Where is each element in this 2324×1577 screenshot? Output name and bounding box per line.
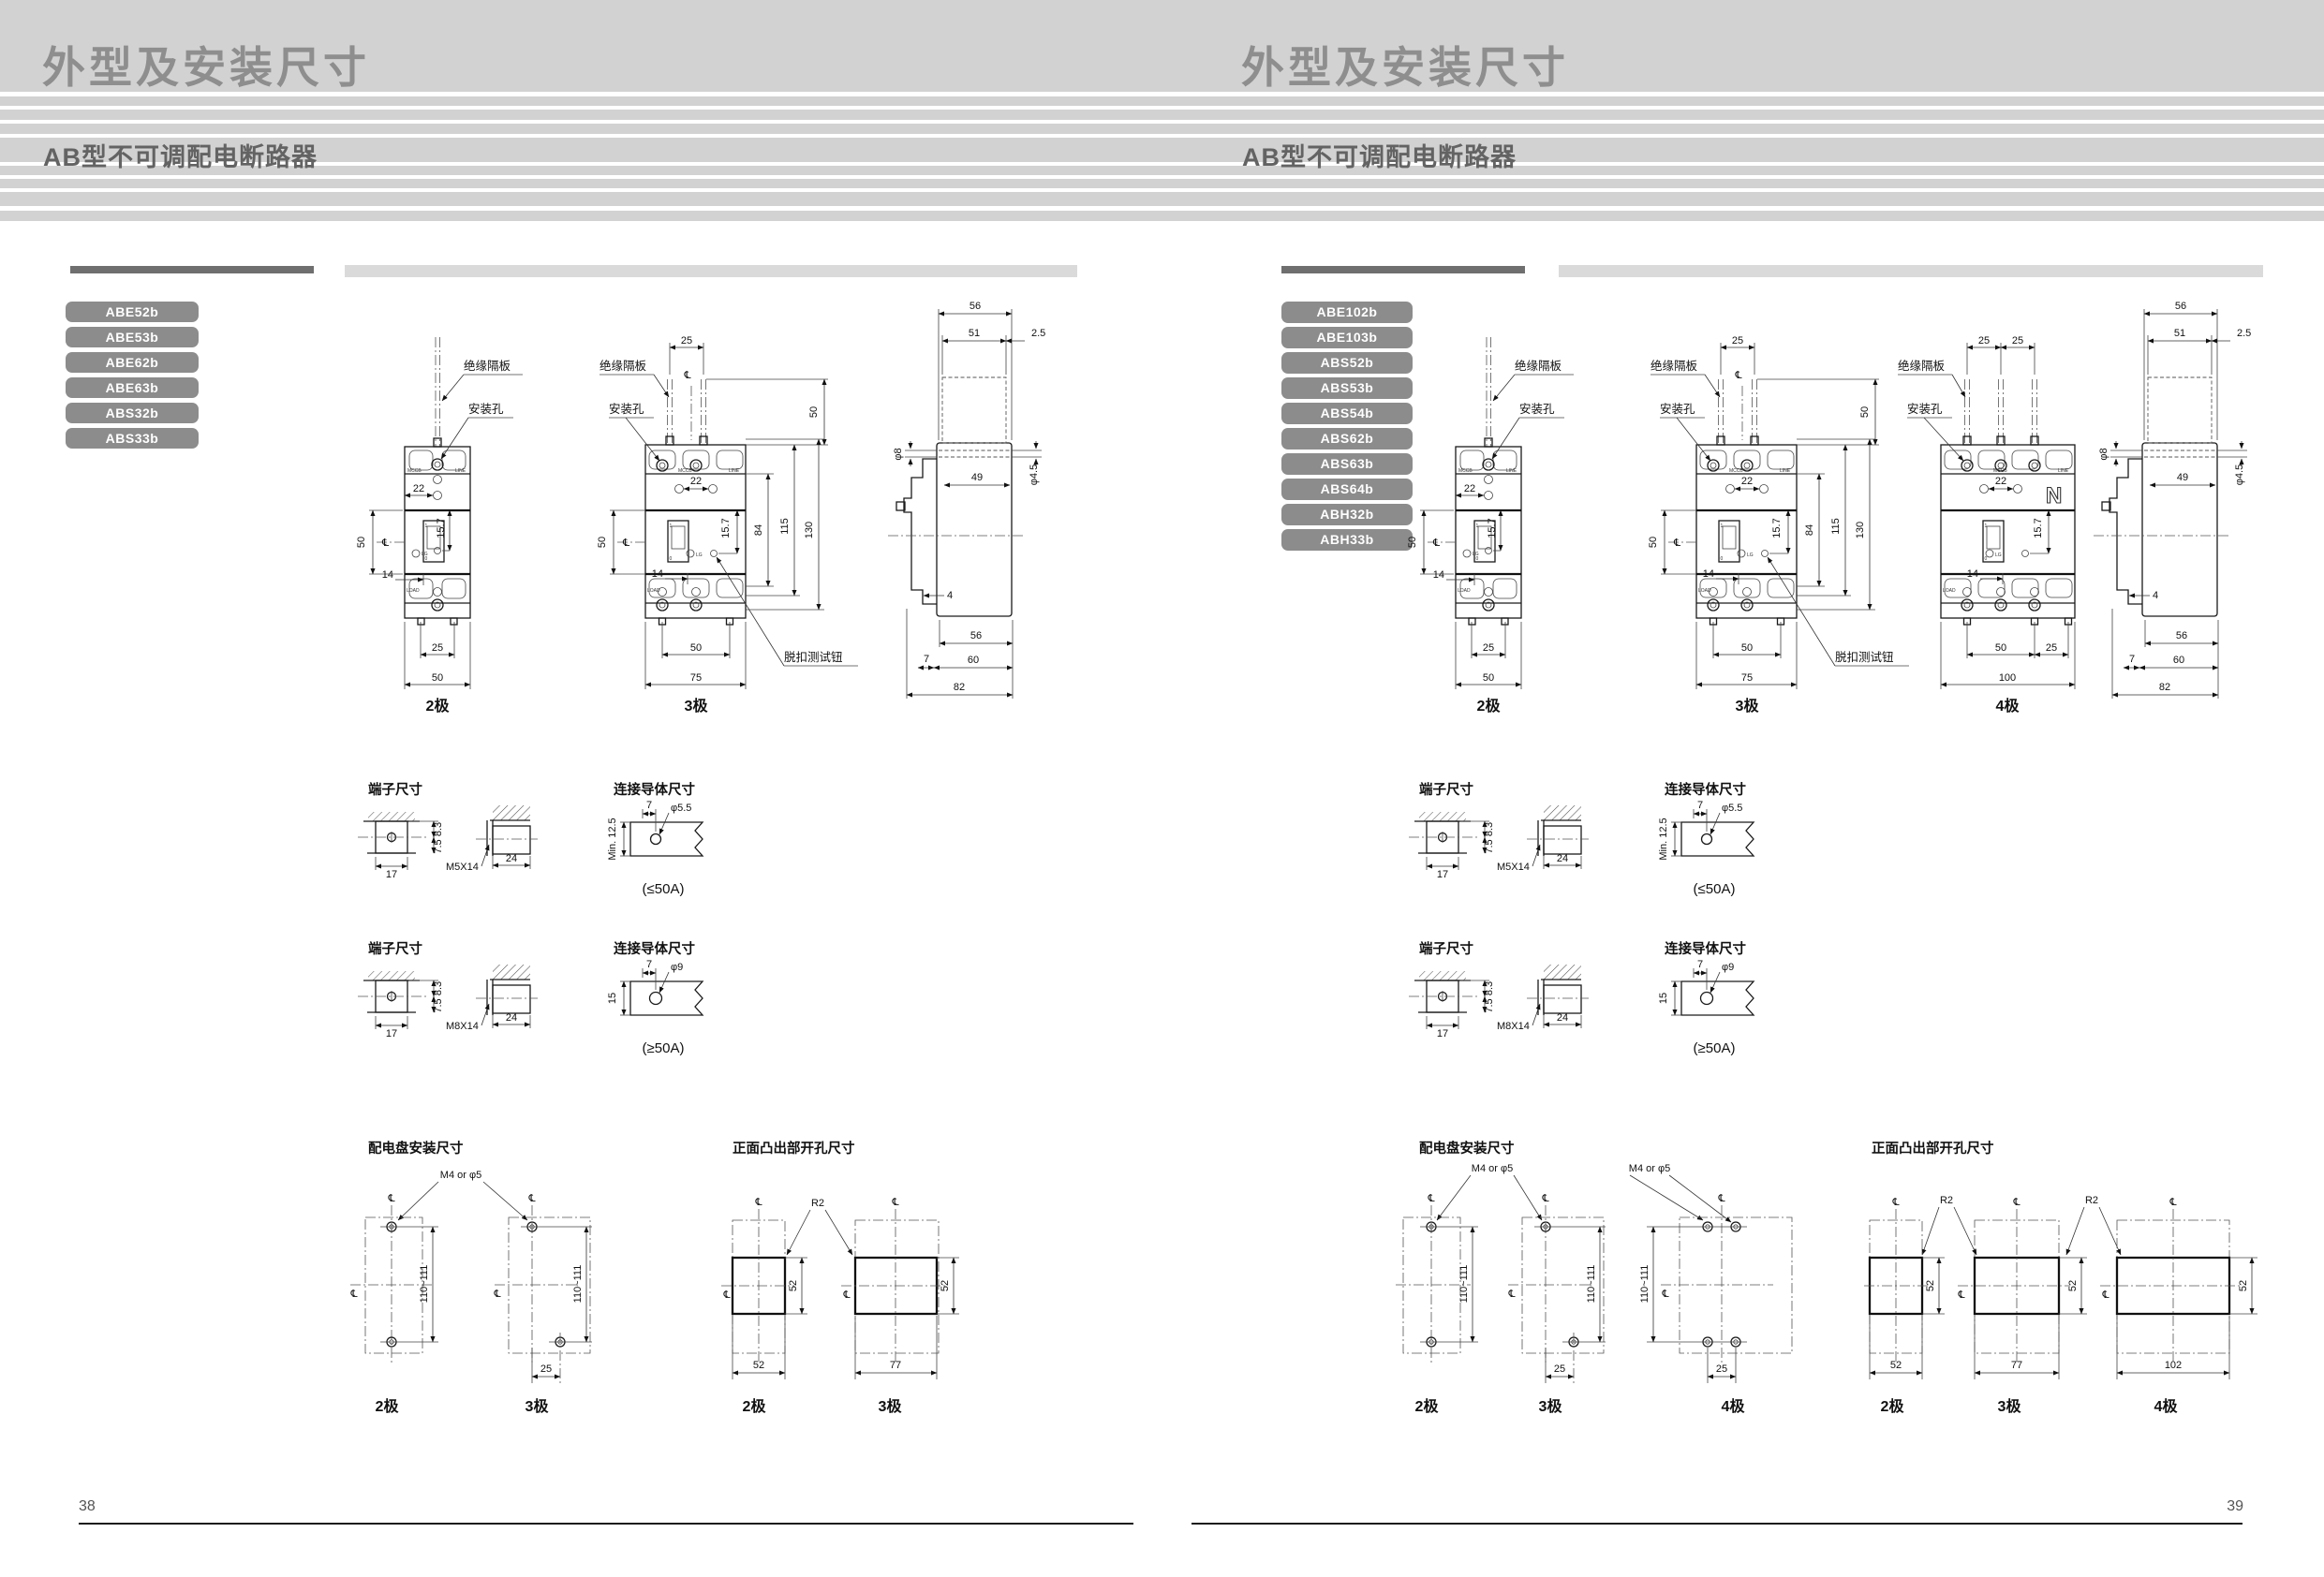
dim-label: 14 [1703, 568, 1714, 580]
model-badge: ABS52b [1281, 352, 1413, 374]
dim-label: 17 [386, 1028, 397, 1039]
model-badge: ABE63b [66, 377, 199, 398]
page-number-left: 38 [79, 1498, 96, 1515]
caption: 4极 [1722, 1397, 1746, 1415]
dim-label: 22 [1995, 476, 2006, 487]
dim-label: 110~111 [1458, 1265, 1470, 1304]
dim-label: 7 [646, 959, 652, 970]
centerline-symbol: ℄ [1541, 1193, 1548, 1204]
dim-label: 52 [940, 1280, 951, 1291]
dim-label: 24 [506, 853, 517, 864]
caption: 3极 [1736, 697, 1760, 715]
dim-label: 75 [1741, 672, 1753, 684]
dim-label: 110~111 [1639, 1265, 1650, 1304]
leader-label: 脱扣测试钮 [784, 650, 843, 664]
section-title: 端子尺寸 [368, 940, 422, 957]
dim-label: 7.5 [1484, 839, 1495, 853]
dim-label: 82 [954, 682, 965, 693]
dim-label: 24 [1557, 853, 1568, 864]
face-text: MCCB [1729, 468, 1743, 474]
dim-label: 2.5 [1031, 328, 1045, 339]
dim-label: 25 [540, 1363, 552, 1375]
rating-label: (≥50A) [643, 1040, 685, 1056]
centerline-symbol: ℄ [2101, 1290, 2109, 1301]
dim-label: 110~111 [572, 1265, 584, 1304]
leader-label: 脱扣测试钮 [1835, 650, 1894, 664]
caption: 2极 [743, 1397, 767, 1415]
centerline-symbol: ℄ [1427, 1193, 1434, 1204]
dim-label: 22 [690, 476, 702, 487]
centerline-symbol: ℄ [2012, 1197, 2020, 1208]
dim-label: 17 [1437, 1028, 1448, 1039]
dim-label: 77 [890, 1360, 901, 1371]
dim-label: 52 [2238, 1280, 2249, 1291]
model-badge: ABE53b [66, 327, 199, 347]
dim-label: 52 [2067, 1280, 2079, 1291]
dim-label: 52 [1925, 1280, 1936, 1291]
footer-rule-right [1192, 1523, 2243, 1525]
dim-label: 25 [1483, 642, 1494, 654]
dim-label: 7 [924, 654, 929, 665]
rating-label: (≤50A) [643, 881, 685, 897]
front-view-3pole: LG MCCB LINE LOAD 1 0 ℄ 25 50 84 115 130… [597, 335, 858, 715]
screw-label: M4 or φ5 [440, 1170, 481, 1181]
dim-label: 14 [1967, 568, 1978, 580]
dim-label: 50 [1407, 537, 1418, 548]
handle-on: 1 [425, 523, 428, 529]
centerline-symbol: ℄ [1432, 538, 1440, 549]
dim-label: 14 [1433, 569, 1444, 581]
face-text: LOAD [407, 588, 420, 594]
section-bar-dark [70, 266, 314, 273]
model-badge: ABH32b [1281, 504, 1413, 525]
dim-label: 102 [2165, 1360, 2182, 1371]
model-list-left: ABE52b ABE53b ABE62b ABE63b ABS32b ABS33… [66, 302, 199, 453]
section-title: 配电盘安装尺寸 [368, 1140, 464, 1157]
model-badge: ABE62b [66, 352, 199, 373]
face-text: MCCB [407, 468, 422, 474]
face-text: MCCB [1458, 468, 1473, 474]
dim-label: 130 [1855, 522, 1866, 538]
dim-label: 110~111 [419, 1265, 430, 1304]
handle-on: 1 [670, 523, 673, 529]
dim-label: 110~111 [1586, 1265, 1597, 1304]
model-badge: ABS54b [1281, 403, 1413, 424]
dim-label: 52 [1890, 1360, 1902, 1371]
page-subtitle: AB型不可调配电断路器 [1242, 137, 1517, 173]
face-text: LOAD [1698, 588, 1711, 594]
dim-label: 24 [506, 1012, 517, 1024]
model-badge: ABS32b [66, 403, 199, 423]
section-title: 配电盘安装尺寸 [1419, 1140, 1515, 1157]
dim-label: 15.7 [1487, 518, 1498, 538]
model-badge: ABS64b [1281, 479, 1413, 500]
leader-label: 绝缘隔板 [464, 359, 511, 373]
centerline-symbol: ℄ [891, 1197, 898, 1208]
dim-label: 7 [1697, 959, 1703, 970]
face-text: LOAD [647, 588, 660, 594]
leader-label: 安装孔 [1519, 402, 1555, 416]
dim-label: 25 [1732, 335, 1743, 346]
dim-label: φ4.5 [2234, 464, 2245, 485]
page-title: 外型及安装尺寸 [1241, 34, 1569, 96]
dim-label: 50 [356, 537, 367, 548]
dim-label: 14 [652, 568, 663, 580]
dim-label: 15.7 [436, 518, 447, 538]
dim-label: 60 [2173, 655, 2184, 666]
dim-label: 25 [2046, 642, 2057, 654]
leader-label: 安装孔 [1907, 402, 1943, 416]
model-badge: ABS63b [1281, 453, 1413, 475]
dim-label: 84 [1804, 524, 1815, 536]
centerline-symbol: ℄ [1891, 1197, 1899, 1208]
centerline-symbol: ℄ [842, 1290, 850, 1301]
dim-label: 7.5 [433, 839, 444, 853]
dim-label: Min. 12.5 [1658, 818, 1669, 860]
dim-label: 25 [1978, 335, 1990, 346]
dim-label: 100 [1999, 672, 2016, 684]
section-bar-dark [1281, 266, 1525, 273]
centerline-symbol: ℄ [1957, 1290, 1964, 1301]
dim-label: 17 [1437, 869, 1448, 880]
leader-label: 绝缘隔板 [1898, 359, 1946, 373]
dim-label: 15 [1658, 993, 1669, 1004]
dim-label: 60 [968, 655, 979, 666]
caption: 2极 [376, 1397, 400, 1415]
face-text: MCCB [1993, 468, 2007, 474]
front-view-3pole: LG MCCB LINE LOAD 1 0 ℄ 25 50 84 115 130… [1648, 335, 1909, 715]
outline-drawing-right: LG MCCB LINE LOAD 1 0 22 50 ℄ 15.7 14 25… [1396, 281, 2324, 721]
leader-label: 绝缘隔板 [600, 359, 647, 373]
model-badge: ABS53b [1281, 377, 1413, 399]
caption: 3极 [685, 697, 709, 715]
centerline-symbol: ℄ [1661, 1289, 1668, 1300]
model-badge: ABE102b [1281, 302, 1413, 323]
dim-label: 56 [970, 630, 982, 641]
dim-label: 14 [382, 569, 393, 581]
screw-label: M4 or φ5 [1629, 1163, 1670, 1174]
dim-label: Min. 12.5 [607, 818, 618, 860]
dim-label: 82 [2159, 682, 2170, 693]
rating-label: (≥50A) [1694, 1040, 1736, 1056]
dim-label: M8X14 [1497, 1021, 1530, 1032]
dim-label: 50 [690, 642, 702, 654]
caption: 3极 [525, 1397, 550, 1415]
dim-label: 15.7 [1771, 518, 1783, 538]
panel-mounting-left: 配电盘安装尺寸 M4 or φ5 ℄ ℄ 110~111 2极 ℄ ℄ 110~… [345, 1138, 654, 1433]
dim-label: 50 [1859, 406, 1871, 418]
leader-label: 安装孔 [609, 402, 644, 416]
section-title: 连接导体尺寸 [1665, 781, 1746, 798]
brand-text: LG [1747, 553, 1754, 558]
section-bar-light [1559, 265, 2263, 277]
dim-label: 25 [2012, 335, 2023, 346]
dim-label: 115 [1830, 518, 1842, 535]
side-view: 56 51 2.5 φ8 49 φ4.5 4 56 7 60 82 [888, 301, 1045, 699]
model-list-right: ABE102b ABE103b ABS52b ABS53b ABS54b ABS… [1281, 302, 1413, 554]
dim-label: 56 [970, 301, 981, 312]
face-text: LINE [455, 468, 466, 474]
leader-label: 绝缘隔板 [1650, 359, 1698, 373]
handle-off: 0 [1721, 556, 1724, 562]
face-text: LINE [1506, 468, 1517, 474]
dim-label: 50 [1741, 642, 1753, 654]
dim-label: 25 [1554, 1363, 1565, 1375]
terminal-dims-left-1: 端子尺寸 17 8.3 7.5 M5X14 24 连接导体尺寸 7 φ5.5 M… [345, 777, 719, 913]
face-text: MCCB [678, 468, 692, 474]
section-title: 连接导体尺寸 [614, 781, 695, 798]
radius-label: R2 [2085, 1195, 2098, 1206]
dim-label: φ8 [893, 448, 904, 460]
caption: 3极 [879, 1397, 903, 1415]
brand-text: LG [696, 553, 703, 558]
caption: 2极 [1477, 697, 1502, 715]
model-badge: ABS33b [66, 428, 199, 449]
centerline-symbol: ℄ [754, 1197, 762, 1208]
dim-label: 50 [432, 672, 443, 684]
section-bar-light [345, 265, 1077, 277]
dim-label: 56 [2176, 630, 2187, 641]
centerline-symbol: ℄ [722, 1290, 730, 1301]
dim-label: 8.3 [1484, 981, 1495, 995]
model-badge: ABE52b [66, 302, 199, 322]
handle-off: 0 [670, 556, 673, 562]
centerline-symbol: ℄ [622, 538, 629, 549]
caption: 2极 [426, 697, 451, 715]
dim-label: 130 [804, 522, 815, 538]
dim-label: 51 [969, 328, 980, 339]
dim-label: 17 [386, 869, 397, 880]
outline-drawing-left: LG MCCB LINE LOAD 1 0 22 50 ℄ 15.7 14 25… [345, 281, 1094, 721]
dim-label: 84 [753, 524, 764, 536]
model-badge: ABH33b [1281, 529, 1413, 551]
dim-label: 50 [1648, 537, 1659, 548]
front-view-2pole: LG MCCB LINE LOAD 1 0 22 50 ℄ 15.7 14 25… [356, 337, 523, 715]
page-subtitle: AB型不可调配电断路器 [43, 137, 318, 173]
leader-label: 绝缘隔板 [1515, 359, 1562, 373]
dim-label: 4 [947, 590, 953, 601]
dim-label: 50 [808, 406, 820, 418]
dim-label: 8.3 [433, 822, 444, 836]
dim-label: 77 [2011, 1360, 2022, 1371]
face-text: LINE [2058, 468, 2069, 474]
centerline-symbol: ℄ [1507, 1289, 1515, 1300]
front-cutout-left: 正面凸出部开孔尺寸 R2 ℄ ℄ 52 52 2极 ℄ ℄ 52 77 3极 [721, 1138, 1002, 1433]
section-title: 连接导体尺寸 [614, 940, 695, 957]
dim-label: 7 [1697, 800, 1703, 811]
terminal-dims-right-2: 端子尺寸 17 8.3 7.5 M8X14 24 连接导体尺寸 7 φ9 15 … [1396, 936, 1770, 1072]
dim-label: φ8 [2098, 448, 2109, 460]
section-title: 正面凸出部开孔尺寸 [1872, 1140, 1994, 1157]
centerline-symbol: ℄ [1734, 370, 1741, 381]
face-text: LINE [1780, 468, 1791, 474]
caption: 2极 [1415, 1397, 1440, 1415]
page-number-right: 39 [2208, 1498, 2243, 1515]
dim-label: 51 [2174, 328, 2185, 339]
front-view-4pole: LG MCCB LINE LOAD 1 0 N 25 25 22 15.7 14… [1898, 335, 2075, 715]
dim-label: 25 [1716, 1363, 1727, 1375]
dim-label: 22 [1464, 483, 1475, 494]
face-text: LOAD [1943, 588, 1956, 594]
neutral-pole-mark: N [2046, 483, 2062, 508]
dim-label: 7.5 [433, 998, 444, 1012]
section-title: 端子尺寸 [1419, 940, 1473, 957]
centerline-symbol: ℄ [387, 1193, 394, 1204]
caption: 4极 [1996, 697, 2021, 715]
model-badge: ABS62b [1281, 428, 1413, 450]
handle-off: 0 [1985, 556, 1988, 562]
face-text: LINE [729, 468, 740, 474]
front-view-2pole: LG MCCB LINE LOAD 1 0 22 50 ℄ 15.7 14 25… [1407, 337, 1574, 715]
dim-label: 56 [2175, 301, 2186, 312]
dim-label: 49 [971, 472, 983, 483]
screw-label: M4 or φ5 [1472, 1163, 1513, 1174]
dim-label: 25 [681, 335, 692, 346]
caption: 4极 [2154, 1397, 2179, 1415]
dim-label: φ5.5 [1722, 803, 1742, 814]
dim-label: 15.7 [720, 518, 732, 538]
dim-label: φ9 [671, 962, 683, 973]
dim-label: M5X14 [446, 862, 479, 873]
handle-on: 1 [1476, 523, 1479, 529]
dim-label: 25 [432, 642, 443, 654]
centerline-symbol: ℄ [381, 538, 389, 549]
handle-on: 1 [1985, 523, 1988, 529]
dim-label: φ5.5 [671, 803, 691, 814]
dim-label: 49 [2177, 472, 2188, 483]
dim-label: 75 [690, 672, 702, 684]
section-title: 连接导体尺寸 [1665, 940, 1746, 957]
dim-label: 8.3 [433, 981, 444, 995]
dim-label: 115 [779, 518, 791, 535]
caption: 3极 [1539, 1397, 1563, 1415]
section-title: 端子尺寸 [1419, 781, 1473, 798]
leader-label: 安装孔 [1660, 402, 1695, 416]
dim-label: 50 [1483, 672, 1494, 684]
dim-label: 52 [753, 1360, 764, 1371]
handle-off: 0 [1476, 556, 1479, 562]
centerline-symbol: ℄ [683, 370, 690, 381]
side-view: 56 51 2.5 φ8 49 φ4.5 4 56 7 60 82 [2094, 301, 2251, 699]
dim-label: 15 [607, 993, 618, 1004]
radius-label: R2 [811, 1198, 824, 1209]
centerline-symbol: ℄ [349, 1289, 357, 1300]
handle-on: 1 [1721, 523, 1724, 529]
dim-label: 22 [1741, 476, 1753, 487]
front-cutout-right: 正面凸出部开孔尺寸 R2 ℄ 52 52 2极 R2 ℄ ℄ 52 77 3极 … [1864, 1138, 2304, 1433]
centerline-symbol: ℄ [527, 1193, 535, 1204]
radius-label: R2 [1940, 1195, 1953, 1206]
dim-label: 15.7 [2033, 518, 2044, 538]
page-title: 外型及安装尺寸 [42, 34, 370, 96]
face-text: LOAD [1458, 588, 1471, 594]
dim-label: 7 [2129, 654, 2135, 665]
terminal-dims-right-1: 端子尺寸 17 8.3 7.5 M5X14 24 连接导体尺寸 7 φ5.5 M… [1396, 777, 1770, 913]
dim-label: 52 [788, 1280, 799, 1291]
dim-label: 8.3 [1484, 822, 1495, 836]
dim-label: 7.5 [1484, 998, 1495, 1012]
dim-label: φ4.5 [1029, 464, 1040, 485]
dim-label: 7 [646, 800, 652, 811]
panel-mounting-right: 配电盘安装尺寸 M4 or φ5 ℄ 110~111 2极 ℄ ℄ 110~11… [1396, 1138, 1845, 1433]
centerline-symbol: ℄ [493, 1289, 500, 1300]
dim-label: M5X14 [1497, 862, 1530, 873]
centerline-symbol: ℄ [2169, 1197, 2176, 1208]
header-stripes [0, 92, 2324, 221]
dim-label: 50 [597, 537, 608, 548]
footer-rule-left [79, 1523, 1133, 1525]
dim-label: φ9 [1722, 962, 1734, 973]
section-title: 正面凸出部开孔尺寸 [733, 1140, 855, 1157]
centerline-symbol: ℄ [1673, 538, 1680, 549]
caption: 3极 [1998, 1397, 2022, 1415]
centerline-symbol: ℄ [1717, 1193, 1724, 1204]
handle-off: 0 [425, 556, 428, 562]
section-title: 端子尺寸 [368, 781, 422, 798]
caption: 2极 [1881, 1397, 1905, 1415]
dim-label: 2.5 [2237, 328, 2251, 339]
dim-label: 4 [2153, 590, 2158, 601]
dim-label: 50 [1995, 642, 2006, 654]
model-badge: ABE103b [1281, 327, 1413, 348]
rating-label: (≤50A) [1694, 881, 1736, 897]
leader-label: 安装孔 [468, 402, 504, 416]
dim-label: M8X14 [446, 1021, 479, 1032]
dim-label: 22 [413, 483, 424, 494]
dim-label: 24 [1557, 1012, 1568, 1024]
terminal-dims-left-2: 端子尺寸 17 8.3 7.5 M8X14 24 连接导体尺寸 7 φ9 15 … [345, 936, 719, 1072]
brand-text: LG [1995, 553, 2002, 558]
